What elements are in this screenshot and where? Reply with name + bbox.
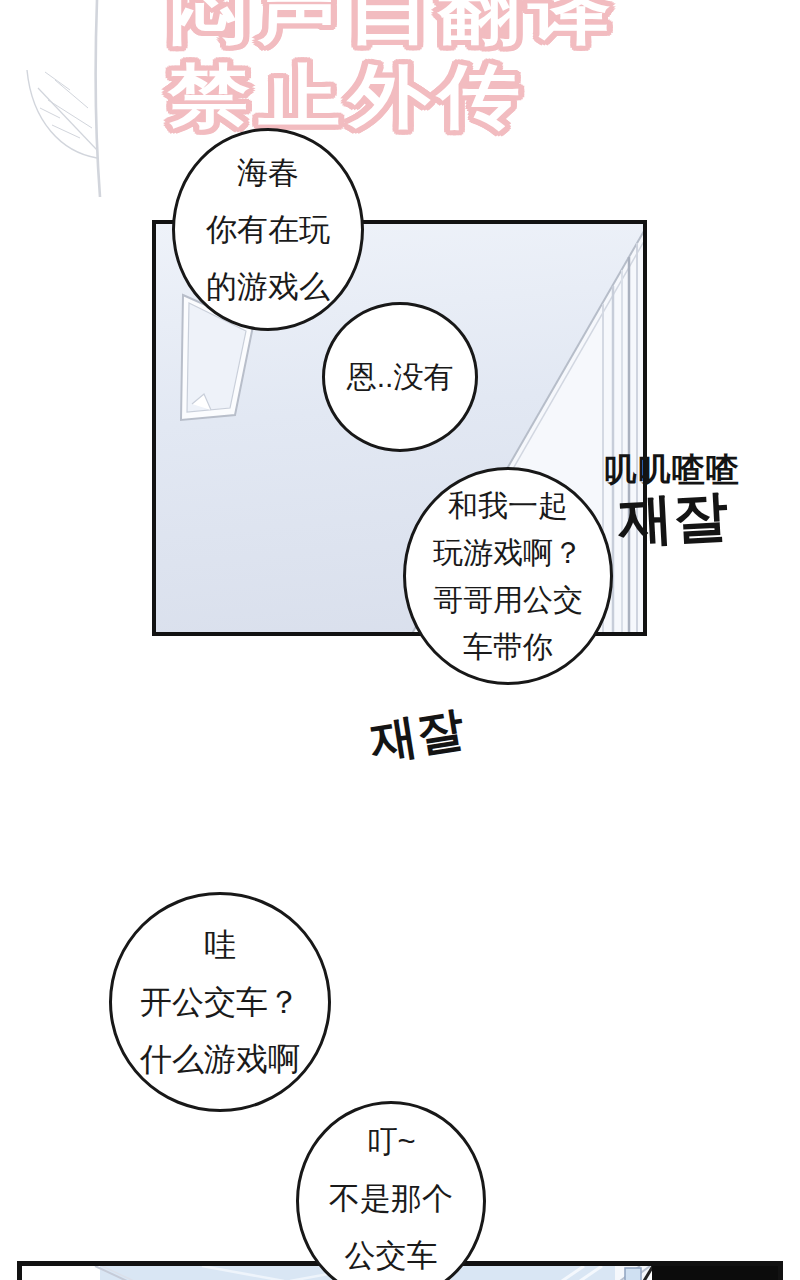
- bubble-3-line-2: 玩游戏啊？: [433, 529, 583, 576]
- leaf-sketch: [0, 0, 170, 205]
- speech-bubble-1: 海春 你有在玩 的游戏么: [172, 128, 364, 331]
- sfx-chatter-korean-left: 재잘: [366, 697, 469, 774]
- bubble-1-line-2: 你有在玩: [206, 201, 330, 258]
- bubble-3-line-3: 哥哥用公交: [433, 576, 583, 623]
- bubble-4-line-1: 哇: [204, 917, 236, 974]
- bubble-3-line-1: 和我一起: [448, 482, 568, 529]
- speech-bubble-4: 哇 开公交车？ 什么游戏啊: [109, 892, 331, 1112]
- bubble-4-line-3: 什么游戏啊: [140, 1031, 300, 1088]
- bubble-5-line-2: 不是那个: [329, 1170, 453, 1227]
- watermark-line-1: 闷声自翻译: [168, 0, 618, 47]
- bubble-3-line-4: 车带你: [463, 623, 553, 670]
- sfx-chatter-korean-top: 재잘: [616, 479, 730, 559]
- bubble-5-line-1: 叮~: [366, 1113, 415, 1170]
- bubble-1-line-3: 的游戏么: [206, 258, 330, 315]
- speech-bubble-2: 恩..没有: [322, 302, 478, 452]
- comic-page: 闷声自翻译 禁止外传 叽叽喳喳 재잘 재잘: [0, 0, 800, 1280]
- speech-bubble-5: 叮~ 不是那个 公交车: [296, 1101, 486, 1280]
- bubble-5-line-3: 公交车: [345, 1227, 438, 1280]
- bubble-2-line-1: 恩..没有: [347, 359, 454, 395]
- bubble-4-line-2: 开公交车？: [140, 974, 300, 1031]
- watermark-line-2: 禁止外传: [168, 62, 528, 131]
- bubble-1-line-1: 海春: [237, 144, 299, 201]
- speech-bubble-3: 和我一起 玩游戏啊？ 哥哥用公交 车带你: [403, 467, 613, 685]
